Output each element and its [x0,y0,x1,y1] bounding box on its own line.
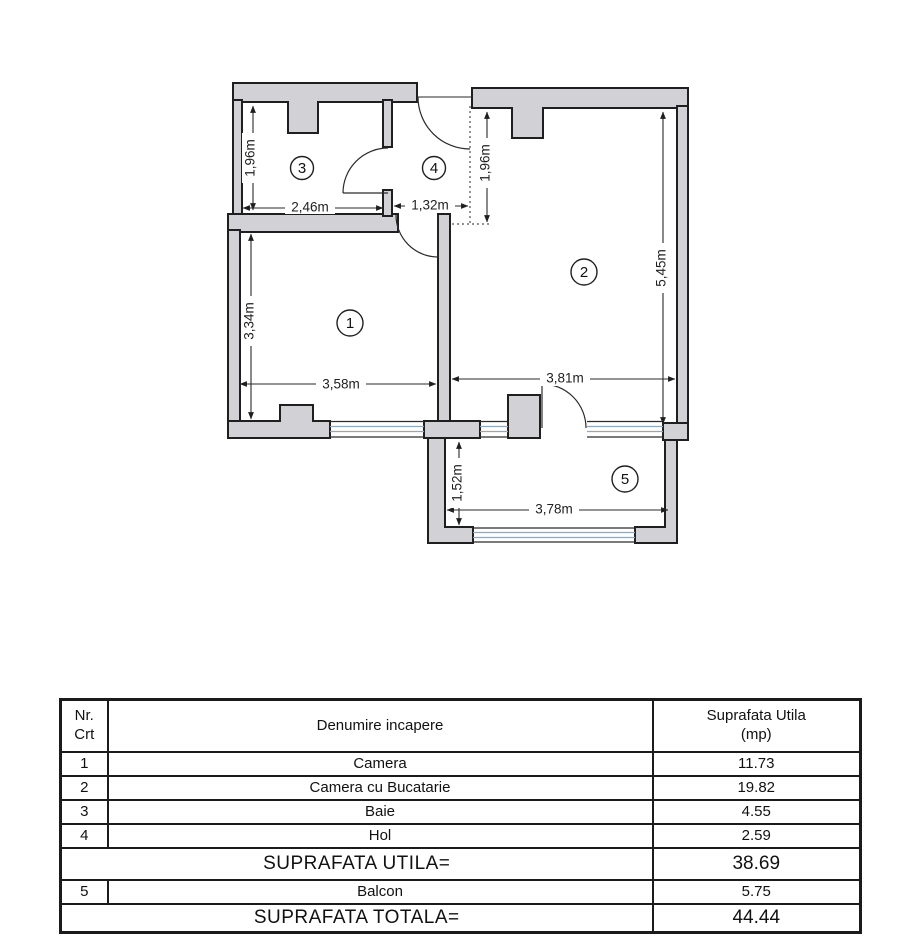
header-denumire: Denumire incapere [108,700,653,753]
subtotal-value: 38.69 [653,848,861,880]
window-living-bottom-left [480,422,508,438]
cell-area: 5.75 [653,880,861,904]
subtotal-label: SUPRAFATA UTILA= [61,848,653,880]
wall-camera-left [228,230,240,421]
cell-name: Camera [108,752,653,776]
dim-label-living-height: 5,45m [653,243,669,293]
header-nr: Nr. [62,707,107,726]
cell-area: 4.55 [653,800,861,824]
dim-label-balcon-height: 1,52m [449,458,465,508]
area-table: Nr. Crt Denumire incapere Suprafata Util… [59,698,862,934]
svg-text:3,78m: 3,78m [535,502,573,517]
cell-nr: 1 [61,752,108,776]
wall-bottom-t-block [424,421,480,438]
svg-text:3,58m: 3,58m [322,377,360,392]
total-value: 44.44 [653,904,861,933]
cell-nr: 4 [61,824,108,848]
dim-label-baie-height: 1,96m [242,133,258,183]
cell-name: Balcon [108,880,653,904]
dim-label-living-width: 3,81m [540,370,590,386]
dim-label-camera-width: 3,58m [316,376,366,392]
table-row: 4 Hol 2.59 [61,824,861,848]
svg-text:2: 2 [580,264,588,281]
table-row: 1 Camera 11.73 [61,752,861,776]
area-table-wrap: Nr. Crt Denumire incapere Suprafata Util… [59,698,862,934]
total-row: SUPRAFATA TOTALA= 44.44 [61,904,861,933]
header-crt: Crt [62,726,107,745]
table-row-balcon: 5 Balcon 5.75 [61,880,861,904]
dim-label-hol-width: 1,32m [405,197,455,213]
room-badge-balcon: 5 [612,466,638,492]
door-balcon [542,384,586,428]
scanned-floor-plan-page: 1,96m 2,46m 1,32m 1,96m 5,45m 3,34m [0,0,916,945]
cell-area: 19.82 [653,776,861,800]
cell-area: 11.73 [653,752,861,776]
cell-name: Baie [108,800,653,824]
room-badges: 3 4 1 2 5 [291,157,639,493]
wall-camera-bottom [228,405,330,438]
wall-balcon-right [635,440,677,543]
floor-plan: 1,96m 2,46m 1,32m 1,96m 5,45m 3,34m [0,0,916,690]
cell-area: 2.59 [653,824,861,848]
door-entrance [417,97,472,149]
table-header-row: Nr. Crt Denumire incapere Suprafata Util… [61,700,861,753]
svg-text:1,96m: 1,96m [243,139,258,177]
window-balcon-bottom [473,528,635,542]
dimension-labels: 1,96m 2,46m 1,32m 1,96m 5,45m 3,34m [241,133,669,517]
table-row: 3 Baie 4.55 [61,800,861,824]
dim-label-baie-width: 2,46m [285,199,335,215]
door-baie [343,148,388,193]
wall-baie-bottom [228,214,398,232]
room-badge-baie: 3 [291,157,314,180]
wall-living-bottom-corner [663,423,688,440]
table-row: 2 Camera cu Bucatarie 19.82 [61,776,861,800]
dim-label-balcon-width: 3,78m [529,501,579,517]
wall-living-right [677,106,688,424]
svg-text:3,81m: 3,81m [546,371,584,386]
wall-baie-right-jamb [383,190,392,216]
svg-text:2,46m: 2,46m [291,200,329,215]
room-badge-living: 2 [571,259,597,285]
door-hol-camera [396,215,438,257]
cell-nr: 5 [61,880,108,904]
window-living-bottom-right [587,422,663,438]
cell-name: Hol [108,824,653,848]
dim-label-hol-height: 1,96m [477,138,493,188]
svg-text:5,45m: 5,45m [654,249,669,287]
svg-text:4: 4 [430,160,438,177]
header-suprafata-line1: Suprafata Utila [654,707,860,726]
total-label: SUPRAFATA TOTALA= [61,904,653,933]
subtotal-row: SUPRAFATA UTILA= 38.69 [61,848,861,880]
header-suprafata: Suprafata Utila (mp) [653,700,861,753]
wall-baie-left [233,100,242,214]
cell-nr: 2 [61,776,108,800]
svg-text:1,96m: 1,96m [478,144,493,182]
dim-label-camera-height: 3,34m [241,296,257,346]
svg-text:1: 1 [346,315,354,332]
wall-baie-right-upper [383,100,392,147]
header-suprafata-mp: (mp) [654,726,860,745]
wall-top-right-with-vent [472,88,688,138]
window-camera-bottom [330,422,424,438]
svg-text:5: 5 [621,471,629,488]
svg-text:3,34m: 3,34m [242,302,257,340]
svg-text:3: 3 [298,160,306,177]
room-badge-hol: 4 [423,157,446,180]
cell-nr: 3 [61,800,108,824]
wall-camera-living-divider [438,214,450,422]
room-badge-camera: 1 [337,310,363,336]
cell-name: Camera cu Bucatarie [108,776,653,800]
svg-text:1,52m: 1,52m [450,464,465,502]
wall-balcony-door-pillar [508,395,540,438]
header-nr-crt: Nr. Crt [61,700,108,753]
svg-text:1,32m: 1,32m [411,198,449,213]
